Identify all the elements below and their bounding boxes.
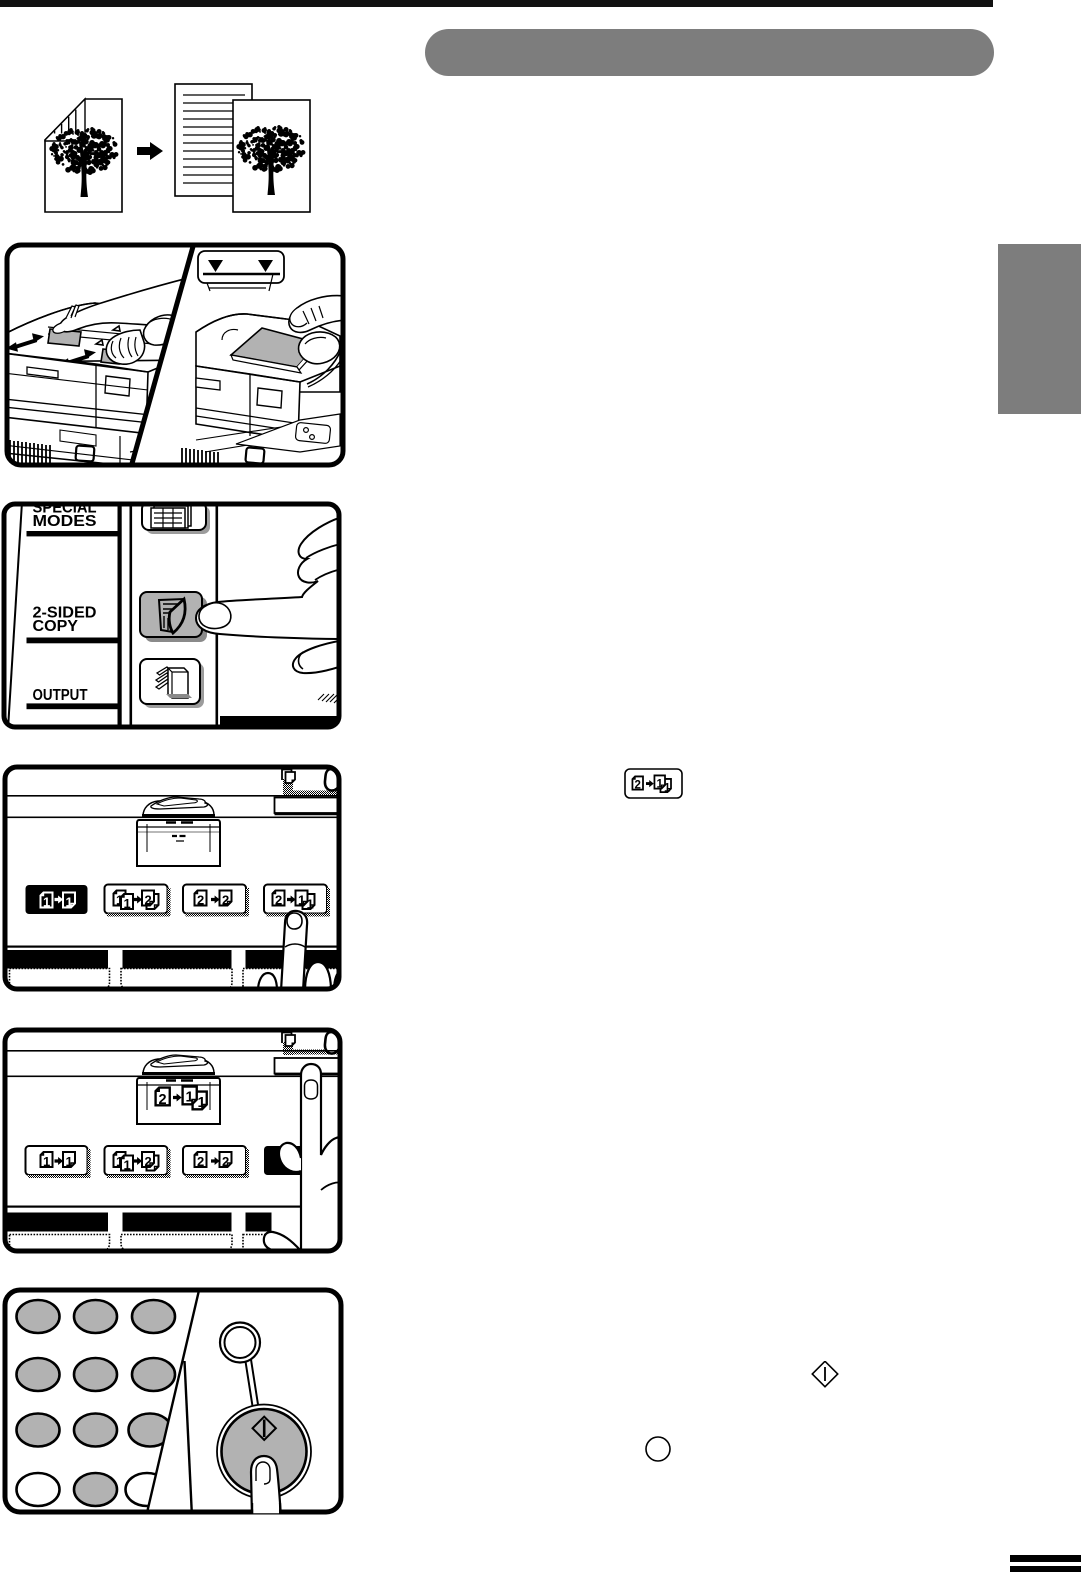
svg-text:2: 2 [197,1154,204,1169]
svg-text:1: 1 [66,895,73,910]
svg-text:MODES: MODES [33,513,97,530]
svg-text:2: 2 [635,780,641,792]
svg-text:2: 2 [275,893,282,908]
svg-text:COPY: COPY [33,618,79,635]
svg-text:OUTPUT: OUTPUT [33,687,88,704]
svg-text:2: 2 [222,1154,229,1169]
svg-text:1: 1 [43,1154,50,1169]
svg-text:2: 2 [145,893,152,908]
svg-text:2: 2 [222,893,229,908]
svg-text:2: 2 [159,1092,167,1108]
svg-text:2: 2 [145,1154,152,1169]
svg-text:1: 1 [657,779,664,791]
svg-text:1: 1 [186,1090,194,1106]
svg-text:1: 1 [124,896,131,911]
svg-text:1: 1 [298,893,305,908]
svg-text:1: 1 [198,1095,206,1111]
svg-text:2: 2 [197,893,204,908]
svg-text:1: 1 [66,1154,73,1169]
svg-text:1: 1 [124,1158,131,1173]
svg-text:1: 1 [43,895,50,910]
